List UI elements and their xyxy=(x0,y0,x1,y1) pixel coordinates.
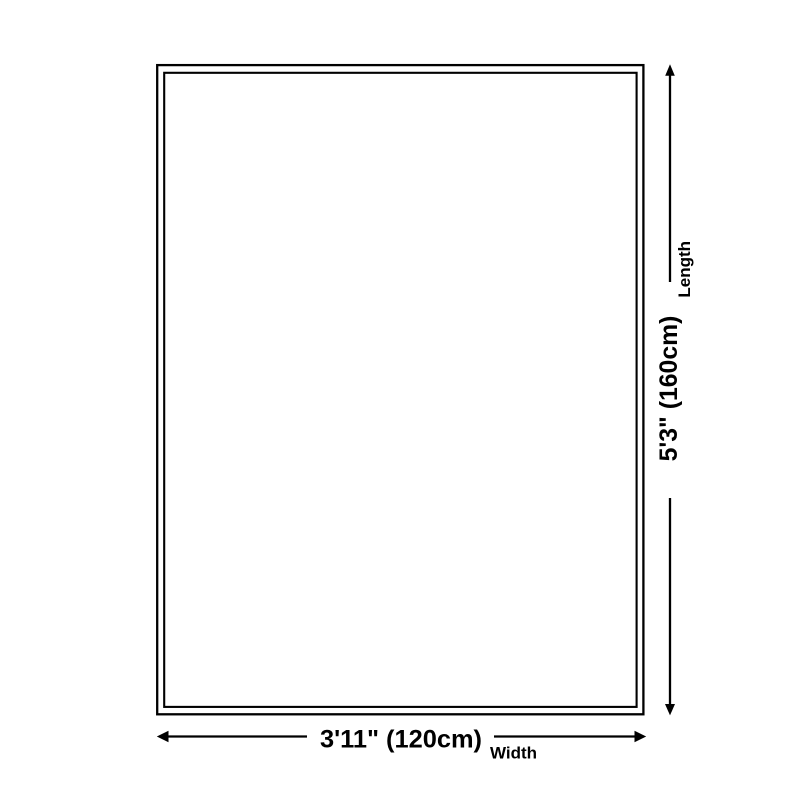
svg-text:Length: Length xyxy=(675,241,694,298)
svg-text:5'3" (160cm): 5'3" (160cm) xyxy=(656,316,683,462)
svg-text:Width: Width xyxy=(490,744,537,763)
svg-text:3'11" (120cm): 3'11" (120cm) xyxy=(320,725,482,753)
